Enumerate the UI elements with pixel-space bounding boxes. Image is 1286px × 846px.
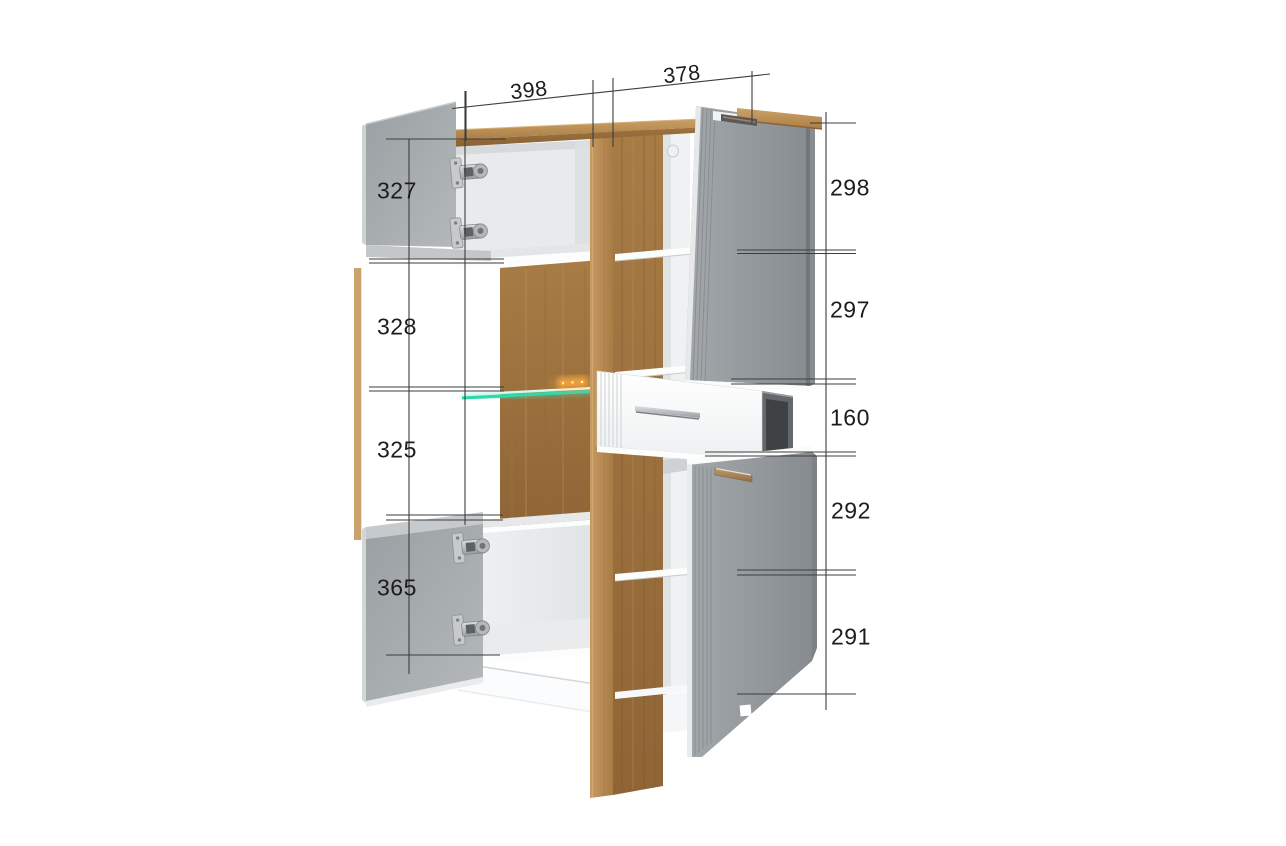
- dim-label-right-lower-mid: 292: [831, 500, 871, 523]
- dim-label-right-drawer: 160: [830, 407, 870, 430]
- drawer-slide-rail: [766, 399, 788, 452]
- upper-left-compartment: [456, 139, 613, 269]
- dim-label-top-right-width: 378: [662, 62, 701, 87]
- dim-label-display-upper: 328: [377, 316, 417, 339]
- dim-label-lower-door: 365: [377, 577, 417, 600]
- dim-label-upper-door: 327: [377, 180, 417, 203]
- dim-label-display-lower: 325: [377, 439, 417, 462]
- cabinet-illustration: [0, 0, 1286, 846]
- upper-right-door: [685, 106, 822, 391]
- dim-label-right-upper-mid: 297: [830, 299, 870, 322]
- door-bottom-notch: [740, 704, 752, 716]
- diagram-canvas: 398 378 327 328 325 365 298 297 160 292 …: [0, 0, 1286, 846]
- dim-label-right-top: 298: [830, 177, 870, 200]
- lower-right-door: [687, 446, 817, 757]
- dim-label-right-bottom: 291: [831, 626, 871, 649]
- left-glass-door-edge: [354, 268, 362, 540]
- cable-grommet: [668, 145, 679, 157]
- dim-label-top-left-width: 398: [509, 78, 548, 103]
